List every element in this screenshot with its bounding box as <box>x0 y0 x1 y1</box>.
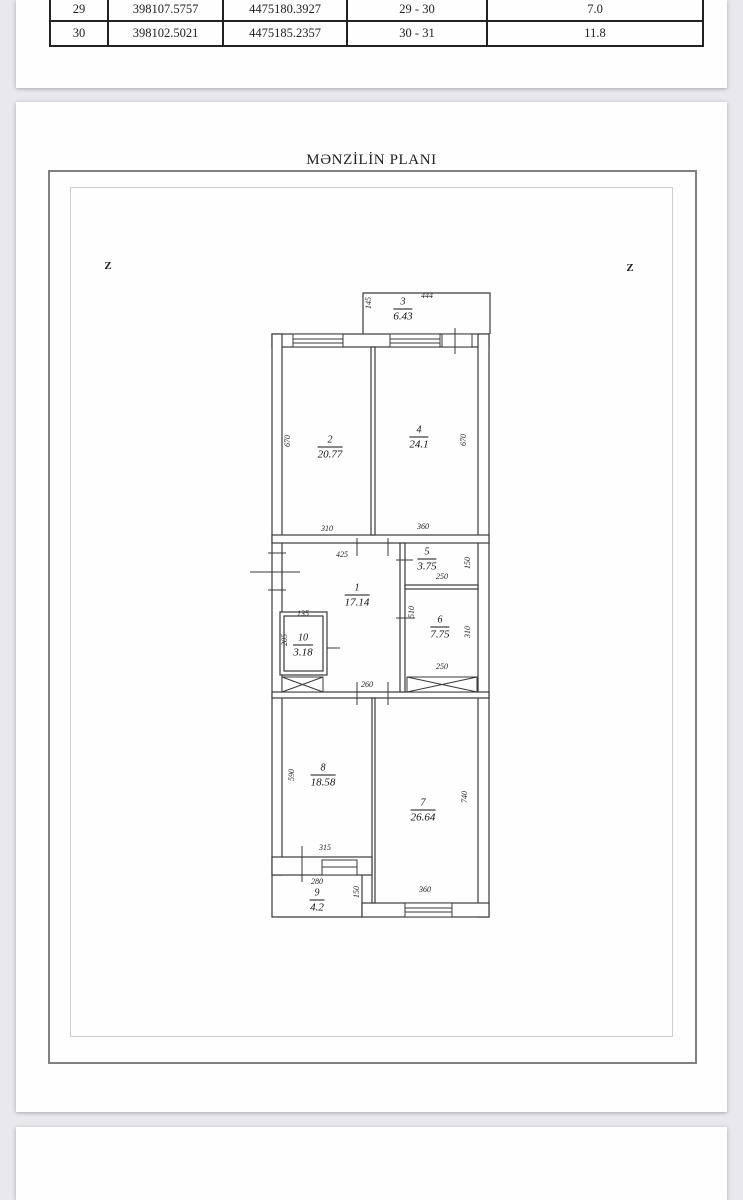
room-number: 5 <box>417 547 436 560</box>
dimension-label: 360 <box>417 523 429 531</box>
room-number: 4 <box>409 425 428 438</box>
length-cell: 7.0 <box>487 0 703 21</box>
room-area: 17.14 <box>345 596 370 610</box>
shaft-hatches <box>282 677 477 692</box>
dimension-label: 315 <box>319 844 331 852</box>
dimension-label: 360 <box>419 886 431 894</box>
length-cell: 11.8 <box>487 21 703 46</box>
dimension-label: 135 <box>297 610 309 618</box>
room-area: 20.77 <box>318 448 343 462</box>
dimension-label: 280 <box>311 878 323 886</box>
room-area: 18.58 <box>311 776 336 790</box>
x-coordinate-cell: 398107.5757 <box>108 0 223 21</box>
segment-cell: 29 - 30 <box>347 0 487 21</box>
room-number: 10 <box>293 633 313 646</box>
room-number: 1 <box>345 583 370 596</box>
room-area: 6.43 <box>393 310 412 324</box>
dimension-label: 590 <box>288 769 296 781</box>
room-label-1: 1 17.14 <box>345 583 370 610</box>
dimension-label: 740 <box>461 791 469 803</box>
dimension-label: 310 <box>321 525 333 533</box>
point-id-cell: 30 <box>50 21 108 46</box>
balcony-outlines <box>272 293 490 917</box>
room-label-8: 8 18.58 <box>311 763 336 790</box>
room-area: 3.75 <box>417 560 436 574</box>
room-label-10: 10 3.18 <box>293 633 313 660</box>
scanned-document-viewer: { "doc": { "title": "MƏNZİLİN PLANI", "c… <box>0 0 743 1200</box>
dimension-label: 150 <box>353 886 361 898</box>
dimension-label: 670 <box>284 435 292 447</box>
room-label-5: 5 3.75 <box>417 547 436 574</box>
dimension-label: 145 <box>365 297 373 309</box>
room-number: 9 <box>310 888 325 901</box>
dimension-label: 260 <box>361 681 373 689</box>
room-label-7: 7 26.64 <box>411 798 436 825</box>
dimension-label: 150 <box>464 557 472 569</box>
dimension-label: 205 <box>281 634 289 646</box>
walls <box>272 334 489 917</box>
coordinate-table: 29 398107.5757 4475180.3927 29 - 30 7.0 … <box>49 0 704 47</box>
dimension-label: 250 <box>436 663 448 671</box>
room-number: 6 <box>430 615 449 628</box>
room-label-2: 2 20.77 <box>318 435 343 462</box>
floor-plan: 3 6.43 2 20.77 4 24.1 1 17.14 5 3.75 6 7… <box>16 102 727 1112</box>
room-area: 7.75 <box>430 628 449 642</box>
room-number: 3 <box>393 297 412 310</box>
table-row: 29 398107.5757 4475180.3927 29 - 30 7.0 <box>50 0 703 21</box>
dimension-label: 310 <box>464 626 472 638</box>
dimension-label: 250 <box>436 573 448 581</box>
room-label-9: 9 4.2 <box>310 888 325 915</box>
document-page-3 <box>16 1127 727 1200</box>
segment-cell: 30 - 31 <box>347 21 487 46</box>
room-label-4: 4 24.1 <box>409 425 428 452</box>
room-label-6: 6 7.75 <box>430 615 449 642</box>
y-coordinate-cell: 4475185.2357 <box>223 21 347 46</box>
table-row: 30 398102.5021 4475185.2357 30 - 31 11.8 <box>50 21 703 46</box>
y-coordinate-cell: 4475180.3927 <box>223 0 347 21</box>
dimension-label: 444 <box>421 292 433 300</box>
room-area: 4.2 <box>310 901 325 915</box>
dimension-label: 510 <box>408 606 416 618</box>
document-page-1: 29 398107.5757 4475180.3927 29 - 30 7.0 … <box>16 0 727 88</box>
floor-plan-drawing <box>16 102 727 1112</box>
room-area: 24.1 <box>409 438 428 452</box>
point-id-cell: 29 <box>50 0 108 21</box>
document-page-2: MƏNZİLİN PLANI Z Z <box>16 102 727 1112</box>
dimension-label: 670 <box>460 434 468 446</box>
x-coordinate-cell: 398102.5021 <box>108 21 223 46</box>
room-number: 7 <box>411 798 436 811</box>
room-area: 3.18 <box>293 646 313 660</box>
room-area: 26.64 <box>411 811 436 825</box>
room-number: 2 <box>318 435 343 448</box>
dimension-label: 425 <box>336 551 348 559</box>
room-number: 8 <box>311 763 336 776</box>
room-label-3: 3 6.43 <box>393 297 412 324</box>
